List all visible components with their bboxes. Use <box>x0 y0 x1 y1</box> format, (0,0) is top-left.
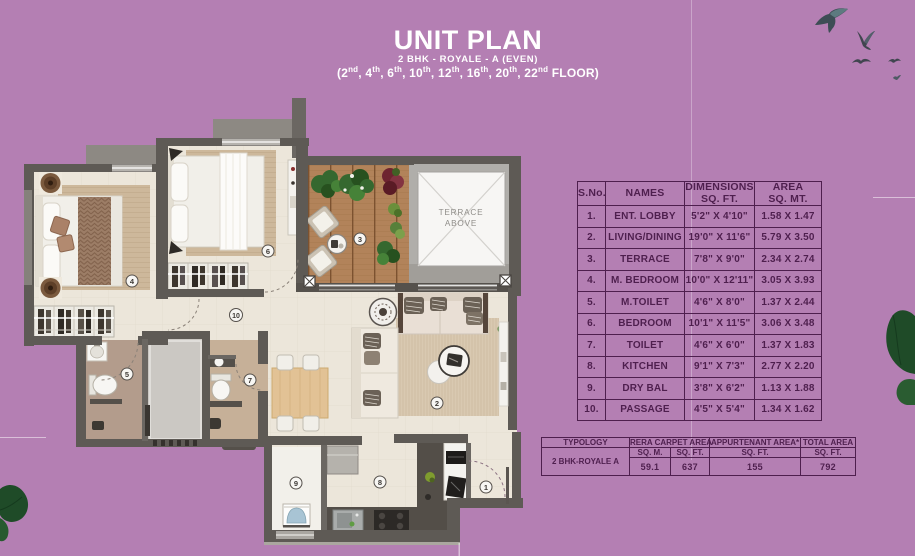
svg-text:ABOVE: ABOVE <box>445 219 477 228</box>
svg-text:7: 7 <box>248 376 252 385</box>
svg-text:3: 3 <box>358 235 362 244</box>
svg-text:TERRACE: TERRACE <box>439 208 484 217</box>
svg-text:1: 1 <box>484 483 488 492</box>
svg-text:2: 2 <box>435 399 439 408</box>
svg-text:10: 10 <box>232 313 240 320</box>
svg-text:5: 5 <box>125 370 129 379</box>
svg-text:8: 8 <box>378 478 382 487</box>
svg-text:9: 9 <box>294 479 298 488</box>
svg-text:6: 6 <box>266 247 270 256</box>
